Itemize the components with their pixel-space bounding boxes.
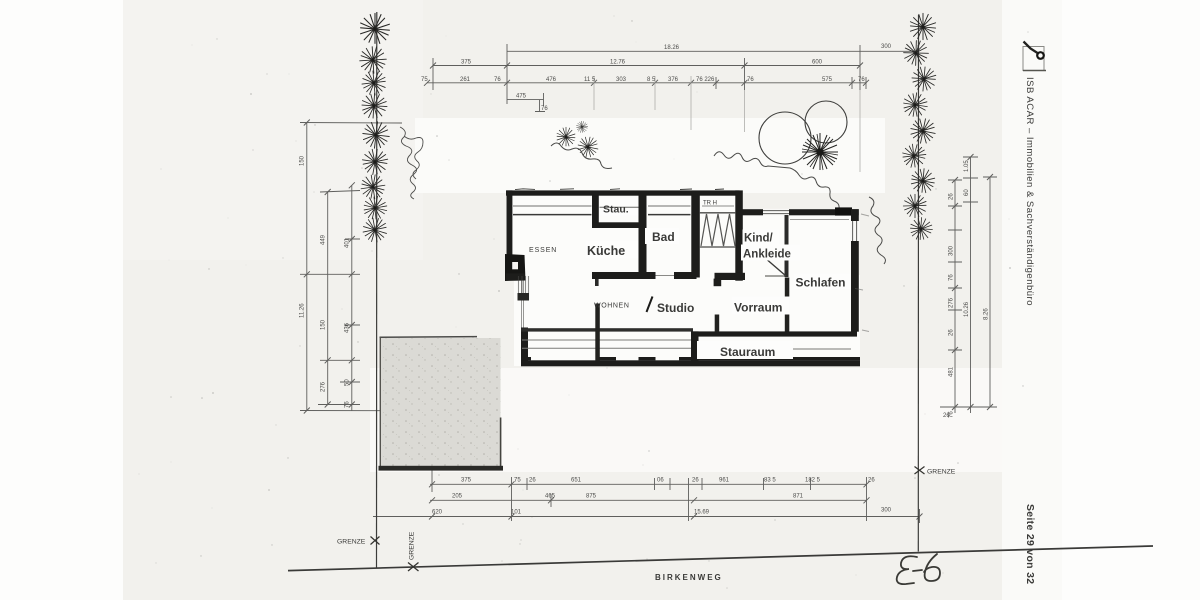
svg-text:276: 276 [321,381,327,392]
svg-text:60: 60 [964,189,970,196]
svg-text:26: 26 [943,413,950,419]
svg-text:476: 476 [546,77,557,83]
svg-text:06: 06 [657,478,664,484]
svg-text:26: 26 [868,478,875,484]
svg-text:10.26: 10.26 [964,301,970,317]
svg-text:83 5: 83 5 [764,478,776,484]
svg-text:75: 75 [514,478,521,484]
svg-text:182 5: 182 5 [805,478,821,484]
svg-text:ISB ACAR – Immobilien & Sachve: ISB ACAR – Immobilien & Sachverständigen… [1024,77,1035,306]
svg-text:375: 375 [461,478,472,484]
svg-text:871: 871 [793,494,804,500]
svg-text:Seite 29 von 32: Seite 29 von 32 [1024,504,1036,584]
svg-text:8 5: 8 5 [647,77,656,83]
svg-text:BIRKENWEG: BIRKENWEG [655,573,723,582]
svg-text:GRENZE: GRENZE [927,469,956,476]
svg-text:76: 76 [345,401,351,408]
svg-text:26: 26 [692,478,699,484]
svg-text:76: 76 [949,274,955,281]
svg-text:76: 76 [541,106,548,112]
svg-text:76 226: 76 226 [696,77,715,83]
svg-text:600: 600 [812,60,823,66]
svg-text:GRENZE: GRENZE [409,531,416,560]
svg-text:475: 475 [516,94,527,100]
svg-text:Stauraum: Stauraum [720,345,775,359]
svg-text:375: 375 [461,60,472,66]
svg-text:11.26: 11.26 [300,303,306,318]
svg-text:465: 465 [545,494,556,500]
svg-text:303: 303 [616,77,627,83]
svg-text:26: 26 [529,478,536,484]
svg-text:276: 276 [949,297,955,308]
svg-text:GRENZE: GRENZE [337,539,366,546]
svg-text:300: 300 [881,44,892,50]
svg-text:449: 449 [321,234,327,245]
svg-text:150: 150 [321,319,327,330]
svg-text:261: 261 [460,77,471,83]
svg-text:50: 50 [345,379,351,386]
svg-text:Ankleide: Ankleide [743,249,791,261]
svg-text:Stau.: Stau. [603,204,629,216]
svg-text:8.26: 8.26 [984,308,990,320]
svg-text:Studio: Studio [657,301,694,315]
svg-text:575: 575 [822,77,833,83]
svg-text:Schlafen: Schlafen [796,276,846,290]
svg-text:26: 26 [949,329,955,336]
svg-text:75: 75 [421,77,428,83]
svg-text:205: 205 [452,494,463,500]
svg-text:18.26: 18.26 [664,45,680,51]
svg-text:TR H: TR H [703,201,717,207]
svg-text:401: 401 [345,237,351,248]
svg-text:ESSEN: ESSEN [529,247,557,254]
svg-text:76: 76 [747,77,754,83]
svg-text:Bad: Bad [652,230,675,244]
svg-text:26: 26 [949,193,955,200]
svg-text:875: 875 [586,494,597,500]
svg-text:436: 436 [345,322,351,333]
svg-text:300: 300 [949,245,955,256]
svg-text:1.05: 1.05 [964,160,970,172]
svg-text:300: 300 [881,508,892,514]
svg-text:961: 961 [719,478,730,484]
svg-text:11 5: 11 5 [584,77,596,83]
svg-text:76: 76 [858,77,865,83]
svg-text:150: 150 [300,155,306,166]
svg-text:12.76: 12.76 [610,60,626,66]
svg-text:76: 76 [494,77,501,83]
svg-text:WOHNEN: WOHNEN [594,303,630,310]
svg-text:481: 481 [949,366,955,377]
svg-text:15.69: 15.69 [694,510,710,516]
svg-text:Vorraum: Vorraum [734,301,782,315]
svg-text:376: 376 [668,77,679,83]
svg-text:620: 620 [432,510,443,516]
svg-text:651: 651 [571,478,582,484]
svg-text:Küche: Küche [587,244,625,258]
svg-text:101: 101 [511,510,522,516]
svg-text:Kind/: Kind/ [744,233,774,245]
